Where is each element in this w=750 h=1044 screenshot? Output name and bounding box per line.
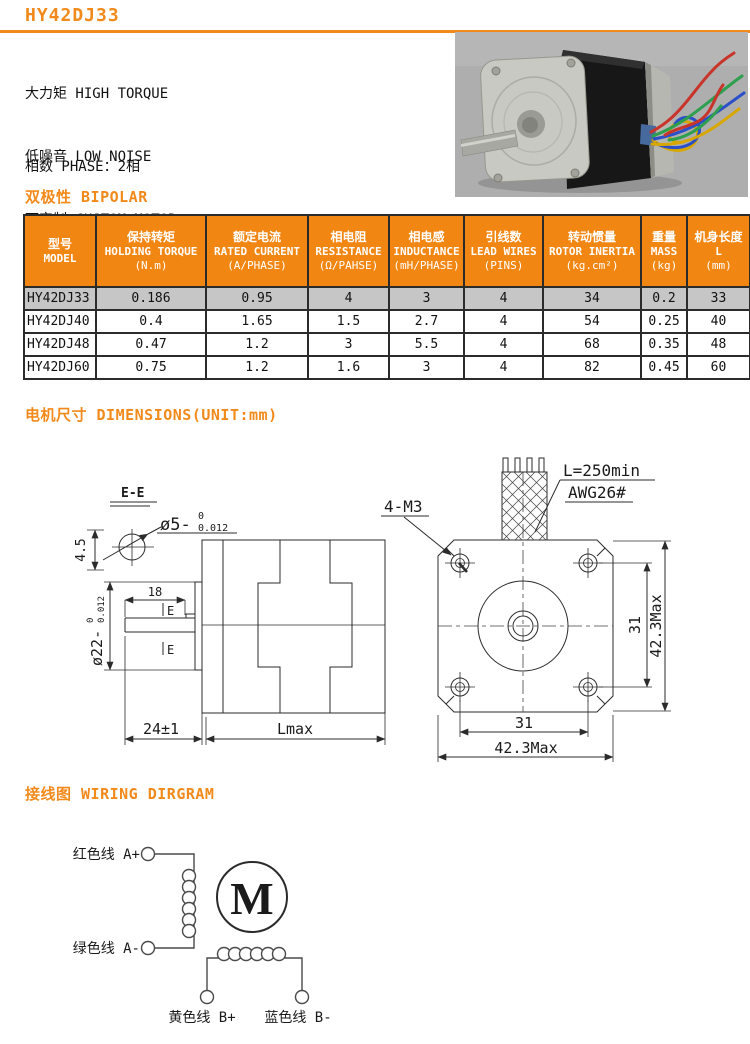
col-header-inductance: 相电感 INDUCTANCE (mH/PHASE) [390,216,465,286]
lead-pin [515,458,520,472]
label-lead-length: L=250min [563,461,640,480]
spec-table: 型号 MODEL 保持转矩 HOLDING TORQUE (N.m) 额定电流 … [23,214,750,380]
cell-value: 48 [688,332,749,355]
cell-value: 0.25 [642,309,688,332]
label-lead-gauge: AWG26# [568,483,626,502]
cell-value: 0.4 [97,309,207,332]
stepper-motor-image [461,50,674,189]
cell-value: 54 [544,309,642,332]
cell-model: HY42DJ48 [25,332,97,355]
col-header-rated-current: 额定电流 RATED CURRENT (A/PHASE) [207,216,309,286]
cell-value: 34 [544,286,642,309]
cell-value: 68 [544,332,642,355]
dim-shaft-total: 24±1 [143,720,179,738]
dimension-31-vertical: 31 [599,563,652,687]
mounting-holes [445,548,603,702]
cell-model: HY42DJ40 [25,309,97,332]
cell-value: 40 [688,309,749,332]
dim-body-length: Lmax [277,720,313,738]
lead-cable [502,458,547,540]
dim-frame-v: 42.3Max [647,594,665,657]
col-header-holding-torque: 保持转矩 HOLDING TORQUE (N.m) [97,216,207,286]
cell-value: 3 [390,355,465,378]
col-header-model: 型号 MODEL [25,216,97,286]
motor-side-view: 18 E E ø22- 0 0.012 24±1 Lmax [86,540,385,745]
cell-value: 1.6 [309,355,390,378]
col-header-body-length: 机身长度 L (mm) [688,216,749,286]
dim-hole-pitch-v: 31 [626,616,644,634]
lead-pin [539,458,544,472]
cell-value: 0.95 [207,286,309,309]
cell-value: 0.2 [642,286,688,309]
cell-value: 3 [390,286,465,309]
dim-flat-height: 4.5 [74,538,89,561]
dim-shaft-tol-lower: 0.012 [198,523,228,534]
dim-pilot-diameter: ø22- [88,630,106,666]
section-heading-wiring: 接线图 WIRING DIRGRAM [25,783,214,804]
cell-value: 60 [688,355,749,378]
cell-value: 1.5 [309,309,390,332]
cell-value: 1.65 [207,309,309,332]
cell-value: 4 [465,332,544,355]
dim-frame-h: 42.3Max [494,739,557,757]
product-photo [455,32,748,197]
dimension-drawing: E-E 4.5 ø5- 0 0.012 [0,420,750,775]
motor-letter: M [230,873,273,924]
dim-shaft-diameter: ø5- [160,515,191,535]
cell-value: 4 [465,309,544,332]
section-marker-e: E [167,643,174,657]
cell-value: 1.2 [207,355,309,378]
label-mount-thread: 4-M3 [384,497,423,516]
cell-value: 3 [309,332,390,355]
dim-pilot-tol-upper: 0 [86,618,96,623]
dimension-31-horizontal: 31 [460,700,588,737]
shaft-section-detail: E-E 4.5 ø5- 0 0.012 [74,486,237,570]
datasheet-page: HY42DJ33 大力矩 HIGH TORQUE 低噪音 LOW NOISE 可… [0,0,750,1044]
label-wire-b-minus: 蓝色线 B- [264,1009,331,1026]
col-header-mass: 重量 MASS (kg) [642,216,688,286]
cell-value: 4 [309,286,390,309]
section-marker-e: E [167,604,174,618]
cell-value: 2.7 [390,309,465,332]
cell-value: 4 [465,355,544,378]
phase-b-circuit [201,948,309,1004]
dim-key-length: 18 [148,585,162,599]
terminal-a-plus [142,848,155,861]
col-header-resistance: 相电阻 RESISTANCE (Ω/PAHSE) [309,216,390,286]
label-wire-a-minus: 绿色线 A- [73,940,140,957]
label-wire-a-plus: 红色线 A+ [73,846,140,863]
dim-shaft-tol-upper: 0 [198,511,204,522]
lead-pin [527,458,532,472]
cell-value: 0.45 [642,355,688,378]
col-header-lead-wires: 引线数 LEAD WIRES (PINS) [465,216,544,286]
cell-value: 5.5 [390,332,465,355]
terminal-a-minus [142,942,155,955]
col-header-rotor-inertia: 转动惯量 ROTOR INERTIA (kg.cm²) [544,216,642,286]
dim-pilot-tol-lower: 0.012 [97,596,107,623]
cell-value: 0.47 [97,332,207,355]
motor-symbol: M [217,862,287,932]
cell-value: 0.186 [97,286,207,309]
motor-front-view: L=250min AWG26# 4-M3 31 42.3Max [381,458,671,762]
cell-value: 33 [688,286,749,309]
section-label: E-E [121,486,144,501]
cell-value: 0.35 [642,332,688,355]
phase-a-circuit [142,848,196,955]
cell-model: HY42DJ33 [25,286,97,309]
terminal-b-minus [296,991,309,1004]
dim-hole-pitch-h: 31 [515,714,533,732]
cell-value: 0.75 [97,355,207,378]
label-wire-b-plus: 黄色线 B+ [168,1009,235,1026]
lead-pin [503,458,508,472]
feature-line: 大力矩 HIGH TORQUE [25,84,177,105]
cell-value: 82 [544,355,642,378]
spec-line: 相数 PHASE：2相 [25,157,297,178]
cell-value: 1.2 [207,332,309,355]
cell-model: HY42DJ60 [25,355,97,378]
page-title: HY42DJ33 [25,5,120,26]
dim-pilot-diameter-group: ø22- 0 0.012 [86,596,107,666]
terminal-b-plus [201,991,214,1004]
cell-value: 4 [465,286,544,309]
wiring-diagram: M 红色线 A+ 绿色线 A- 黄色线 B+ 蓝色线 B- [0,810,420,1044]
section-heading-bipolar: 双极性 BIPOLAR [25,186,148,207]
